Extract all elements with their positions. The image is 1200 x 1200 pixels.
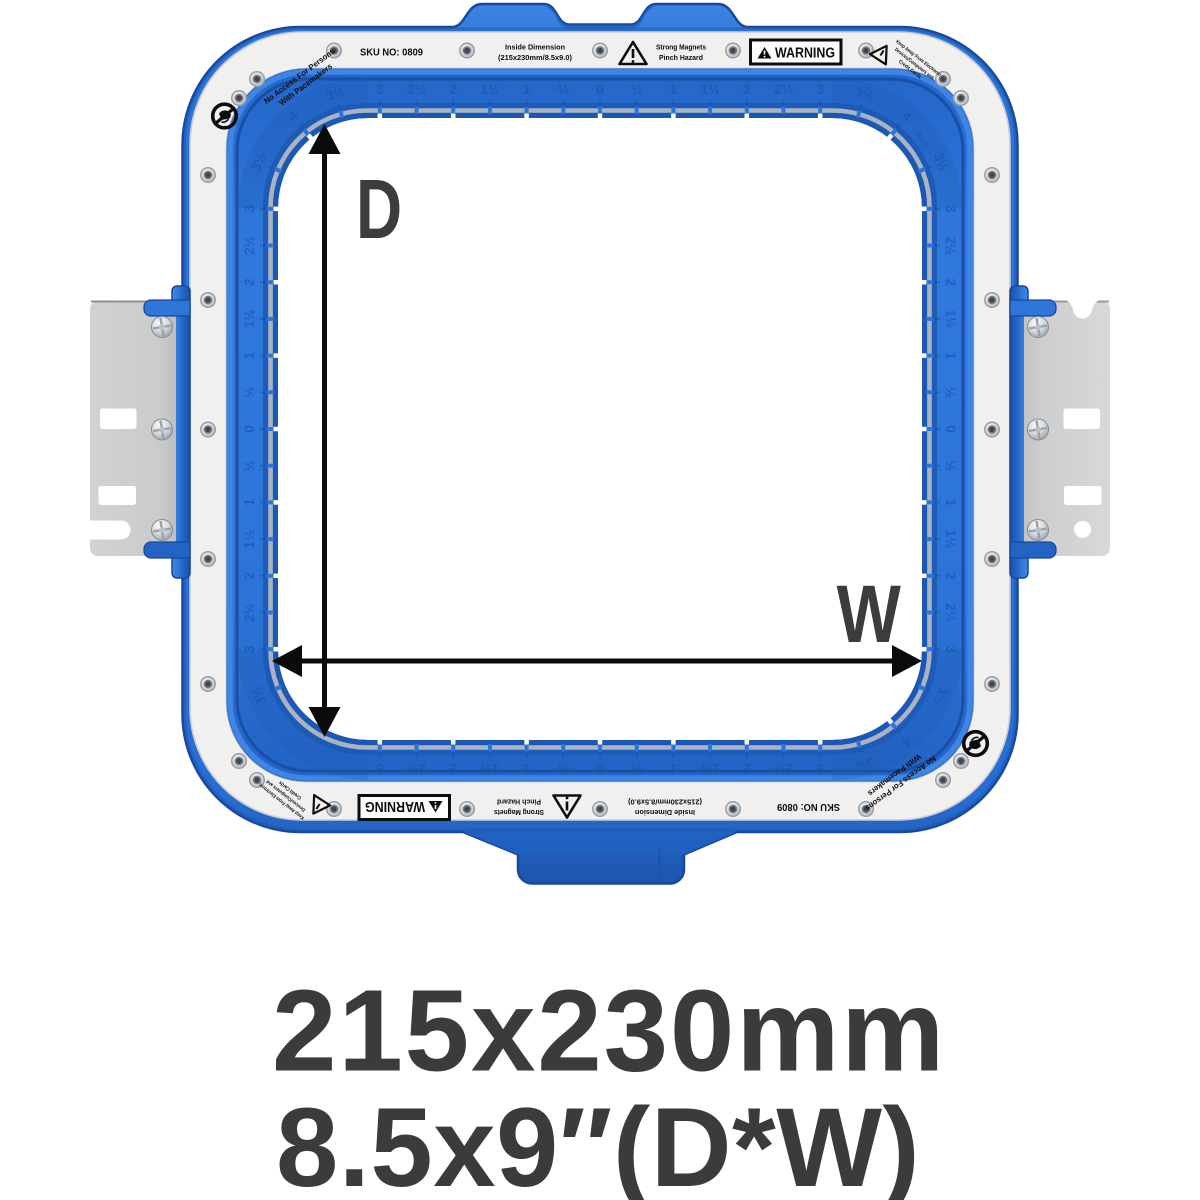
svg-text:1½: 1½ [242,310,257,329]
svg-text:½: ½ [558,761,569,776]
svg-text:D: D [356,161,402,256]
svg-text:1½: 1½ [481,761,500,776]
svg-text:Pinch Hazard: Pinch Hazard [659,53,703,62]
svg-text:2: 2 [943,278,958,286]
svg-text:WARNING: WARNING [775,46,835,62]
svg-text:Inside Dimension: Inside Dimension [635,808,695,817]
svg-text:1: 1 [242,351,257,359]
svg-text:Strong Magnets: Strong Magnets [656,43,706,52]
svg-text:1: 1 [669,761,677,776]
svg-text:3: 3 [816,761,824,776]
svg-text:2: 2 [242,278,257,286]
svg-text:Pinch Hazard: Pinch Hazard [497,798,541,807]
svg-text:½: ½ [943,460,958,471]
svg-text:0: 0 [242,425,257,433]
svg-text:1: 1 [943,499,958,507]
svg-text:2½: 2½ [774,82,793,97]
svg-text:2½: 2½ [407,82,426,97]
svg-text:2½: 2½ [242,603,257,622]
svg-text:1: 1 [522,761,530,776]
svg-text:½: ½ [242,460,257,471]
svg-text:2½: 2½ [943,603,958,622]
svg-text:2: 2 [242,572,257,580]
svg-text:1½: 1½ [481,82,500,97]
svg-text:½: ½ [558,82,569,97]
svg-text:2½: 2½ [242,236,257,255]
svg-text:3: 3 [376,761,384,776]
svg-text:W: W [837,568,902,659]
svg-text:1½: 1½ [943,530,958,549]
svg-text:2: 2 [449,761,457,776]
svg-text:½: ½ [631,82,642,97]
svg-text:0: 0 [596,761,604,776]
svg-text:3: 3 [943,645,958,653]
svg-text:1: 1 [943,352,958,360]
svg-text:1: 1 [670,82,678,97]
svg-text:3: 3 [242,205,257,213]
svg-text:3: 3 [242,645,257,653]
svg-text:2: 2 [449,82,457,97]
svg-text:½: ½ [242,387,257,398]
svg-text:SKU NO: 0809: SKU NO: 0809 [777,801,840,813]
svg-text:1½: 1½ [701,761,720,776]
svg-text:215x230mm: 215x230mm [272,966,946,1096]
svg-text:2: 2 [743,82,751,97]
svg-text:2: 2 [943,572,958,580]
svg-text:3: 3 [943,205,958,213]
svg-text:0: 0 [943,425,958,433]
svg-text:8.5x9″(D*W): 8.5x9″(D*W) [276,1085,920,1200]
svg-text:½: ½ [631,761,642,776]
svg-text:Strong Magnets: Strong Magnets [494,808,544,817]
svg-text:1½: 1½ [242,530,257,549]
svg-text:3: 3 [816,82,824,97]
svg-text:(215x230mm/8.5x9.0): (215x230mm/8.5x9.0) [498,53,573,62]
svg-text:Inside Dimension: Inside Dimension [505,43,565,52]
svg-text:(215x230mm/8.5x9.0): (215x230mm/8.5x9.0) [627,798,702,807]
svg-text:0: 0 [596,82,604,97]
svg-text:2½: 2½ [774,761,793,776]
svg-text:3: 3 [376,82,384,97]
svg-text:2½: 2½ [943,236,958,255]
svg-text:2: 2 [743,761,751,776]
svg-text:1: 1 [242,498,257,506]
svg-text:1½: 1½ [943,310,958,329]
svg-text:1½: 1½ [701,82,720,97]
svg-text:½: ½ [943,387,958,398]
svg-text:WARNING: WARNING [365,798,425,814]
svg-text:2½: 2½ [407,761,426,776]
svg-text:SKU NO: 0809: SKU NO: 0809 [360,47,423,59]
svg-text:1: 1 [523,82,531,97]
